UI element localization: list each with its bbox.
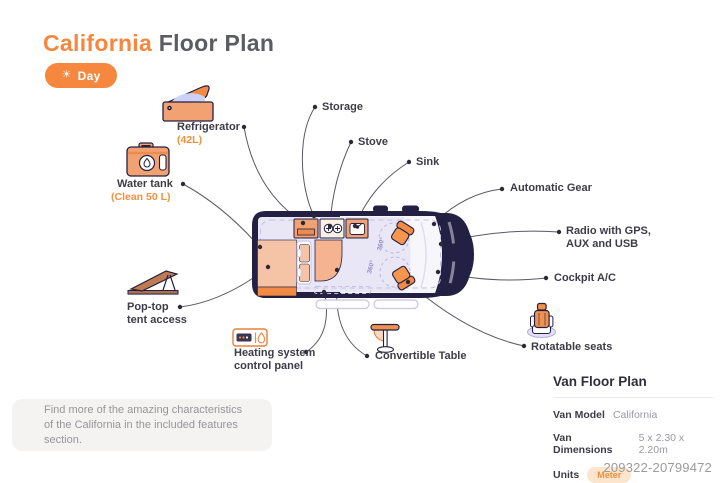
bench-headrest: [298, 249, 301, 257]
callout-water-tank-name: Water tank: [117, 178, 173, 191]
panel-title: Van Floor Plan: [553, 374, 713, 389]
callout-rotatable-seats: Rotatable seats: [531, 341, 612, 354]
callout-water-tank: Water tank (Clean 50 L): [117, 178, 173, 204]
callout-refrigerator-name: Refrigerator: [177, 121, 240, 134]
callout-storage: Storage: [322, 101, 363, 114]
water-tank-icon: [127, 143, 169, 176]
units-label: Units: [553, 469, 579, 481]
callout-heating: Heating system control panel: [234, 347, 315, 373]
callout-radio: Radio with GPS, AUX and USB: [566, 225, 651, 251]
panel-divider: [553, 397, 713, 398]
callout-cockpit-ac: Cockpit A/C: [554, 272, 616, 285]
callout-refrigerator-detail: (42L): [177, 134, 240, 147]
watermark-id: 209322-20799472: [603, 460, 712, 475]
van-model-label: Van Model: [553, 409, 605, 421]
leader-refrigerator: [244, 127, 301, 221]
callout-convertible-table: Convertible Table: [375, 350, 466, 363]
rotatable-seat-icon: [528, 304, 556, 338]
van-model-value: California: [613, 409, 657, 421]
callout-stove: Stove: [358, 136, 388, 149]
features-note: Find more of the amazing characteristics…: [12, 399, 272, 451]
leader-water-tank: [183, 184, 258, 245]
callout-automatic-gear: Automatic Gear: [510, 182, 592, 195]
footboard: [316, 300, 369, 309]
callout-pop-top-line1: Pop-top: [127, 301, 187, 314]
refrigerator-icon: [163, 86, 213, 121]
sink-top-view: [346, 219, 368, 238]
callout-heating-line1: Heating system: [234, 347, 315, 360]
panel-row-dimensions: Van Dimensions 5 x 2.30 x 2.20m: [553, 432, 713, 456]
callout-radio-line1: Radio with GPS,: [566, 225, 651, 238]
stove-top-view: [320, 219, 344, 238]
convertible-table-icon: [371, 325, 399, 353]
bench-headrest: [298, 269, 301, 277]
callout-water-tank-detail: (Clean 50 L): [111, 191, 173, 204]
pop-top-icon: [128, 271, 178, 294]
callout-refrigerator: Refrigerator (42L): [177, 121, 240, 147]
callout-heating-line2: control panel: [234, 360, 315, 373]
features-note-line2: of the California in the included featur…: [44, 418, 272, 448]
features-note-line1: Find more of the amazing characteristics: [44, 403, 272, 418]
panel-row-model: Van Model California: [553, 409, 713, 421]
van-dimensions-label: Van Dimensions: [553, 432, 631, 456]
bed-edge: [258, 287, 297, 296]
callout-pop-top-line2: tent access: [127, 314, 187, 327]
heating-panel-icon: [233, 329, 267, 346]
fridge-top-view: [294, 219, 318, 238]
leader-storage: [302, 107, 315, 214]
van-top-view: 360° 360°: [252, 206, 474, 309]
callout-radio-line2: AUX and USB: [566, 238, 651, 251]
footboard: [374, 300, 418, 309]
van-dimensions-value: 5 x 2.30 x 2.20m: [639, 432, 713, 456]
callout-pop-top: Pop-top tent access: [127, 301, 187, 327]
callout-sink: Sink: [416, 156, 439, 169]
bed: [258, 240, 297, 287]
